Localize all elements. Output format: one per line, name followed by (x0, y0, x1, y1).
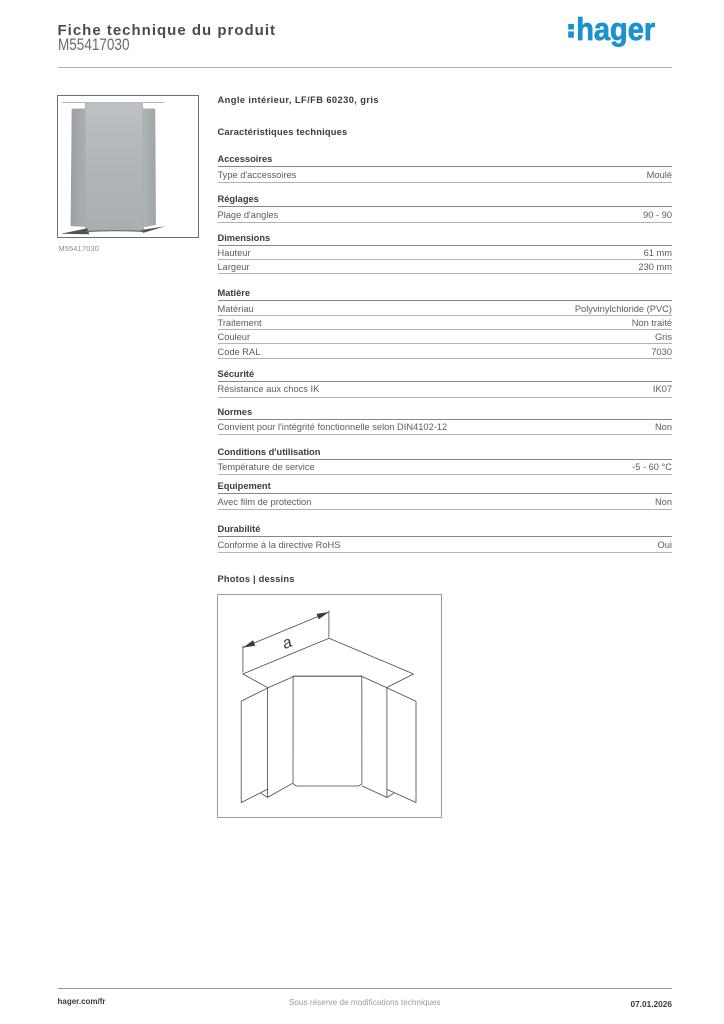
svg-text:hager: hager (576, 12, 655, 47)
